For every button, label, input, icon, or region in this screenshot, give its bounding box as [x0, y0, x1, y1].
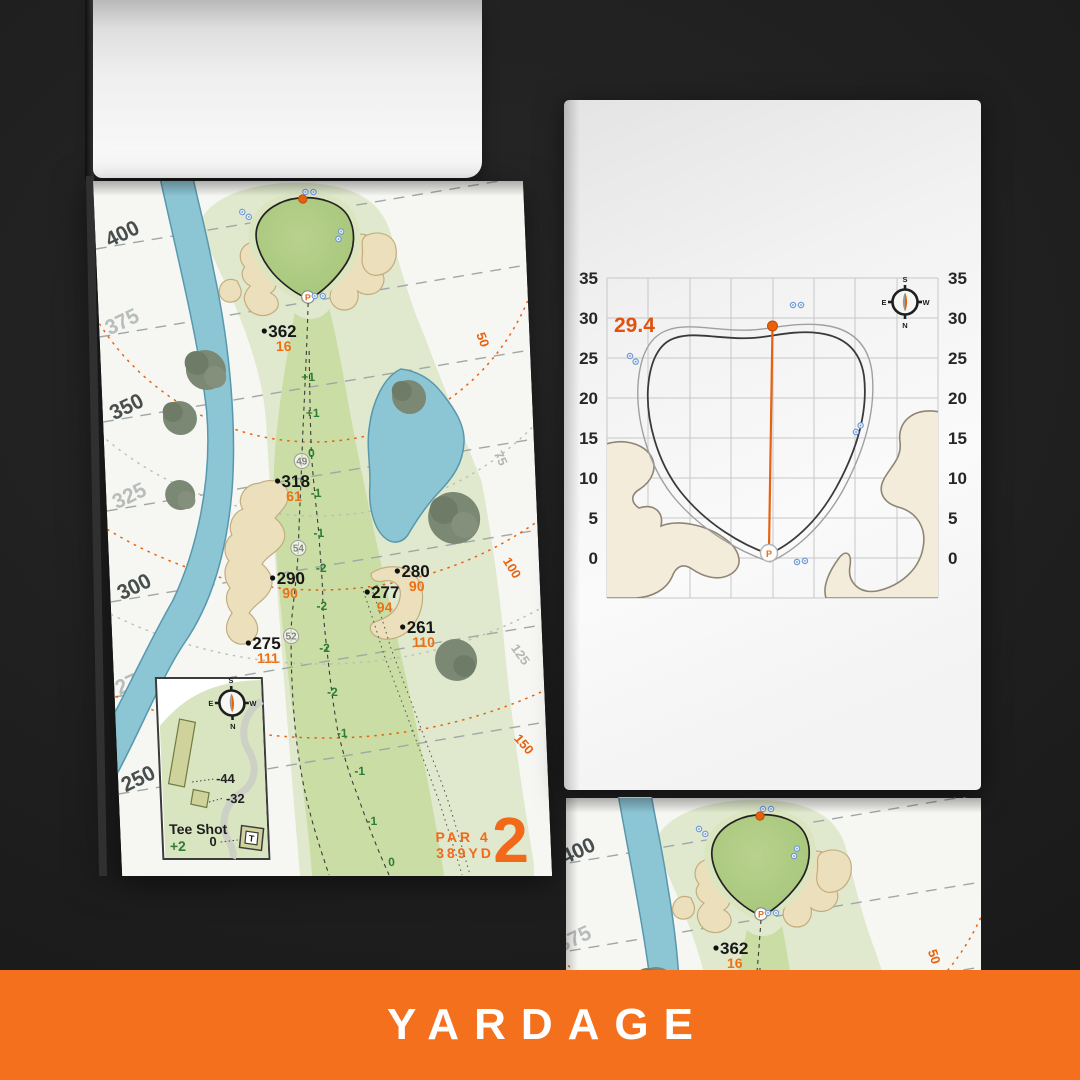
- axis-tick: 30: [579, 309, 598, 328]
- axis-tick: 5: [589, 509, 598, 528]
- flipped-page: [93, 0, 482, 178]
- axis-tick: 0: [948, 549, 957, 568]
- axis-tick: 10: [579, 469, 598, 488]
- pin-position-letter: P: [766, 549, 772, 559]
- axis-tick: 25: [579, 349, 598, 368]
- axis-tick: 20: [579, 389, 598, 408]
- axis-tick: 35: [948, 269, 967, 288]
- axis-tick: 35: [579, 269, 598, 288]
- hole-map-page: [60, 165, 580, 895]
- page-curl-left: [564, 100, 580, 790]
- axis-tick: 10: [948, 469, 967, 488]
- axis-tick: 0: [589, 549, 598, 568]
- axis-tick: 20: [948, 389, 967, 408]
- banner-label: YARDAGE: [372, 1000, 708, 1050]
- yardage-banner: YARDAGE: [0, 970, 1080, 1080]
- product-image: S N W E: [0, 0, 1080, 1080]
- axis-tick: 30: [948, 309, 967, 328]
- axis-tick: 15: [579, 429, 598, 448]
- axis-tick: 25: [948, 349, 967, 368]
- axis-tick: 15: [948, 429, 967, 448]
- depth-dot: [768, 321, 778, 331]
- green-depth-value: 29.4: [614, 314, 655, 337]
- green-detail-page: 35 30 25 20 15 10 5 0 35 30 25 20 15 10 …: [550, 85, 995, 800]
- axis-tick: 5: [948, 509, 957, 528]
